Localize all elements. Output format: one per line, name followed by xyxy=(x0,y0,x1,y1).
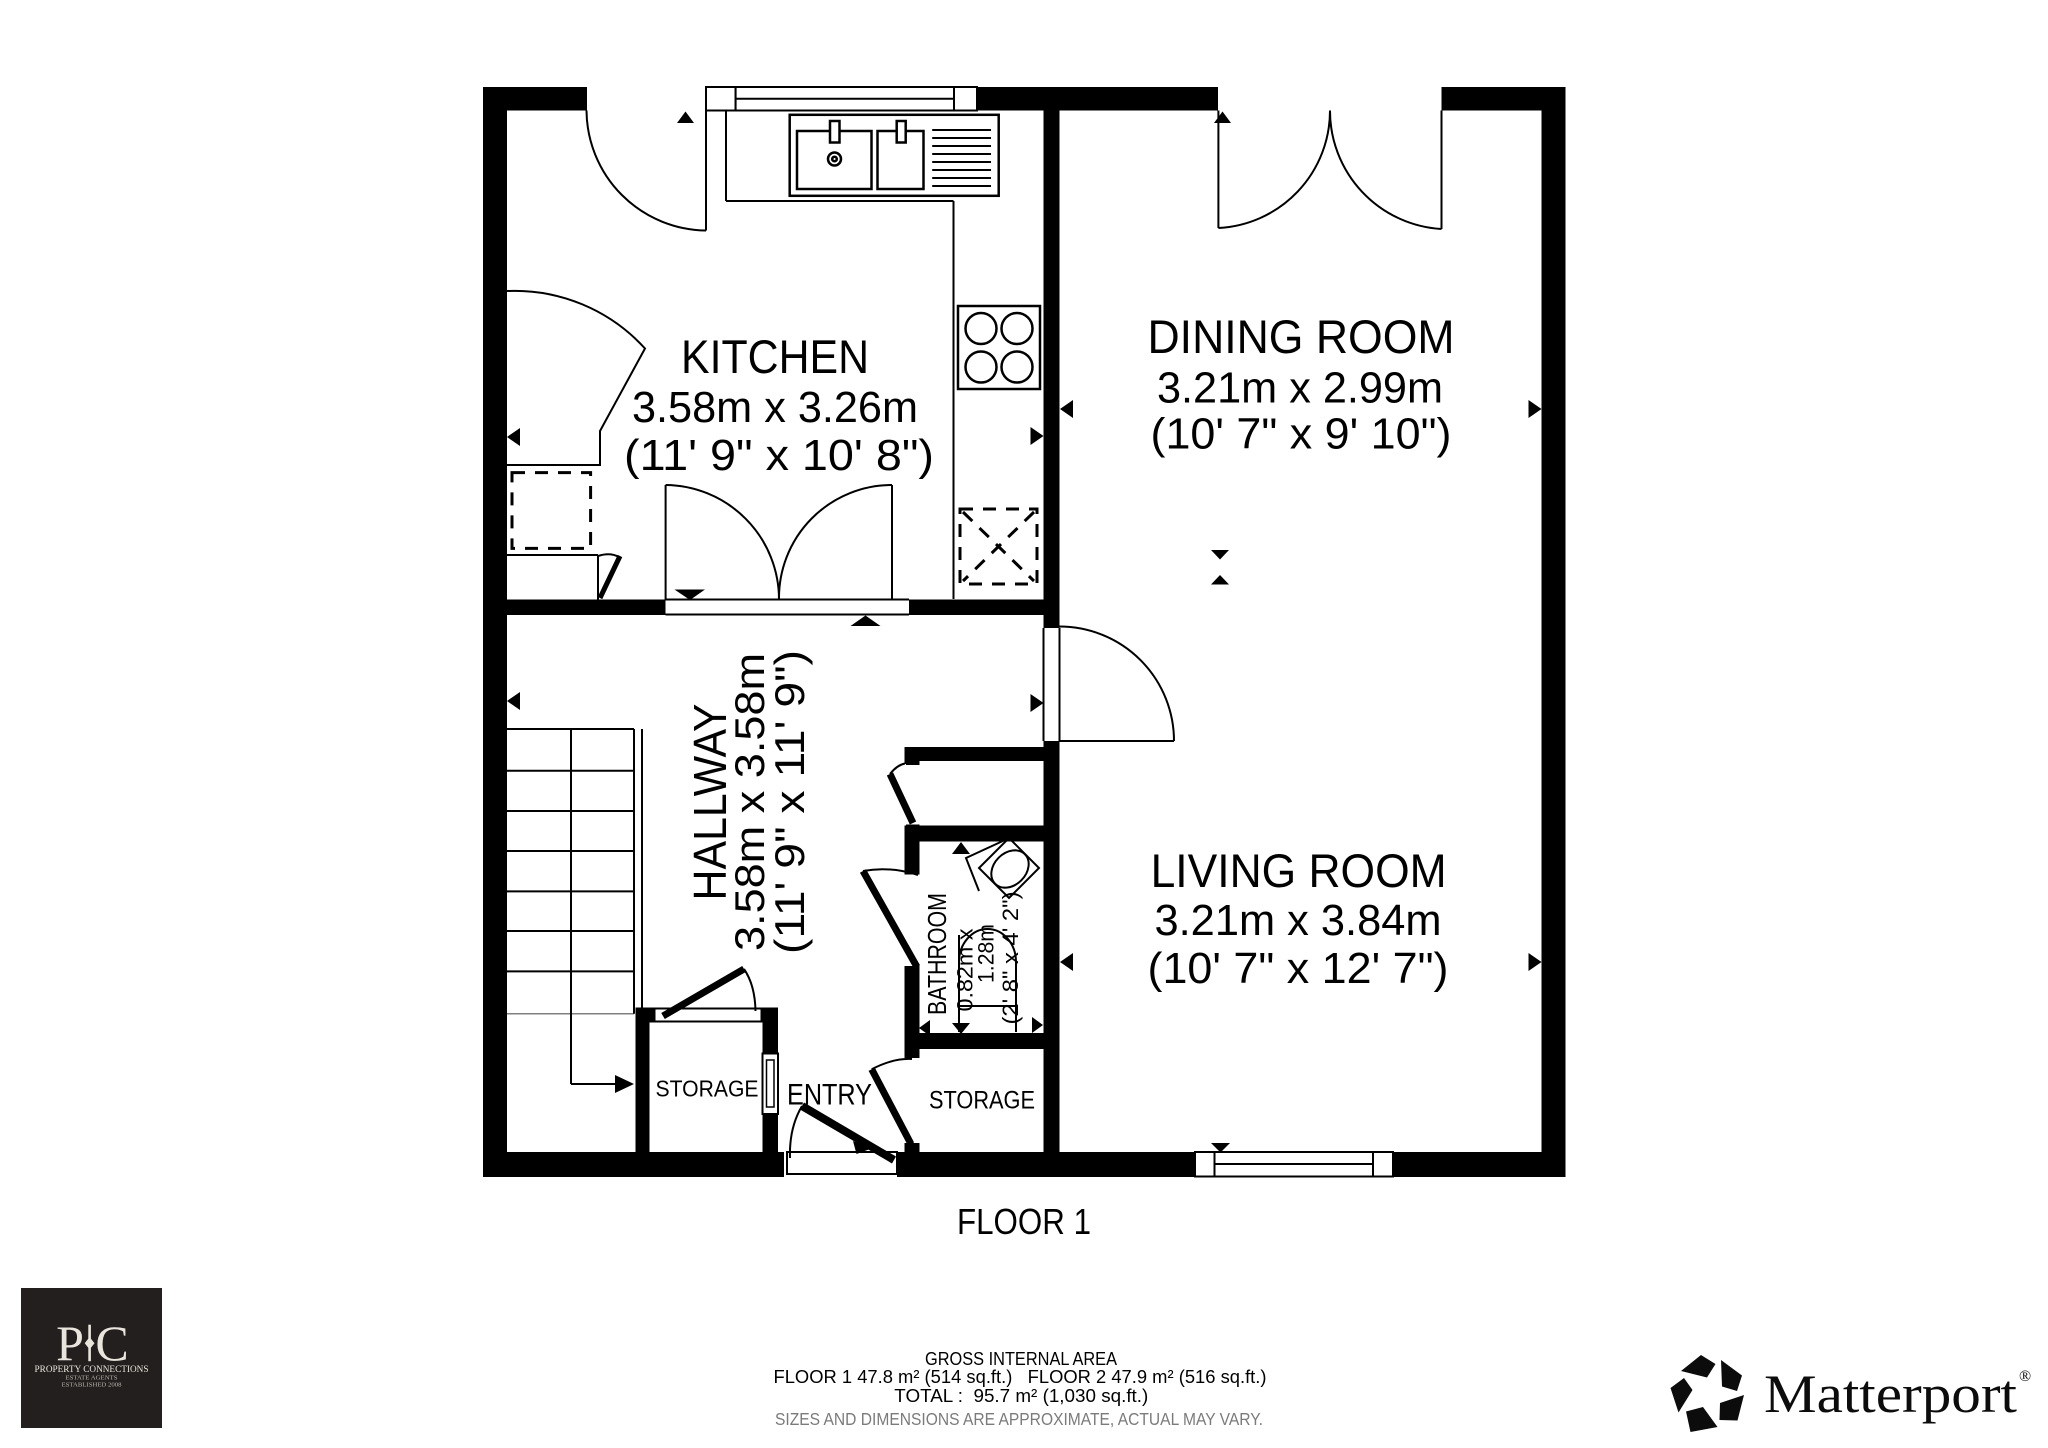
svg-text:(10' 7" x 12' 7"): (10' 7" x 12' 7") xyxy=(1148,944,1449,993)
svg-text:C: C xyxy=(95,1315,128,1371)
svg-text:DINING ROOM: DINING ROOM xyxy=(1148,310,1455,363)
svg-text:SIZES AND DIMENSIONS ARE APPRO: SIZES AND DIMENSIONS ARE APPROXIMATE, AC… xyxy=(775,1409,1263,1429)
svg-text:LIVING ROOM: LIVING ROOM xyxy=(1151,844,1447,897)
svg-text:Matterport: Matterport xyxy=(1764,1364,2017,1424)
svg-text:(2' 8" x 4' 2"): (2' 8" x 4' 2") xyxy=(998,892,1023,1025)
svg-text:®: ® xyxy=(2019,1368,2031,1385)
svg-text:3.21m x 3.84m: 3.21m x 3.84m xyxy=(1155,896,1442,945)
svg-text:BATHROOM: BATHROOM xyxy=(922,893,952,1015)
svg-text:KITCHEN: KITCHEN xyxy=(681,330,869,383)
svg-text:ESTABLISHED 2008: ESTABLISHED 2008 xyxy=(62,1382,122,1389)
svg-text:FLOOR 1: FLOOR 1 xyxy=(957,1201,1091,1242)
svg-text:3.21m x 2.99m: 3.21m x 2.99m xyxy=(1157,364,1443,413)
svg-text:ESTATE AGENTS: ESTATE AGENTS xyxy=(66,1375,118,1382)
svg-text:TOTAL : 95.7 m² (1,030 sq.ft.: TOTAL : 95.7 m² (1,030 sq.ft.) xyxy=(894,1385,1148,1406)
svg-text:STORAGE: STORAGE xyxy=(929,1087,1035,1115)
svg-text:3.58m x 3.26m: 3.58m x 3.26m xyxy=(632,383,918,432)
svg-text:P: P xyxy=(56,1315,84,1371)
svg-text:(11' 9" x 10' 8"): (11' 9" x 10' 8") xyxy=(624,431,934,480)
svg-text:1.28m: 1.28m xyxy=(974,924,999,983)
svg-text:(10' 7" x 9' 10"): (10' 7" x 9' 10") xyxy=(1151,410,1452,459)
svg-text:PROPERTY CONNECTIONS: PROPERTY CONNECTIONS xyxy=(35,1364,149,1374)
svg-text:ENTRY: ENTRY xyxy=(787,1079,872,1112)
svg-text:STORAGE: STORAGE xyxy=(656,1076,759,1102)
svg-text:(11' 9" x 11' 9"): (11' 9" x 11' 9") xyxy=(766,650,813,954)
